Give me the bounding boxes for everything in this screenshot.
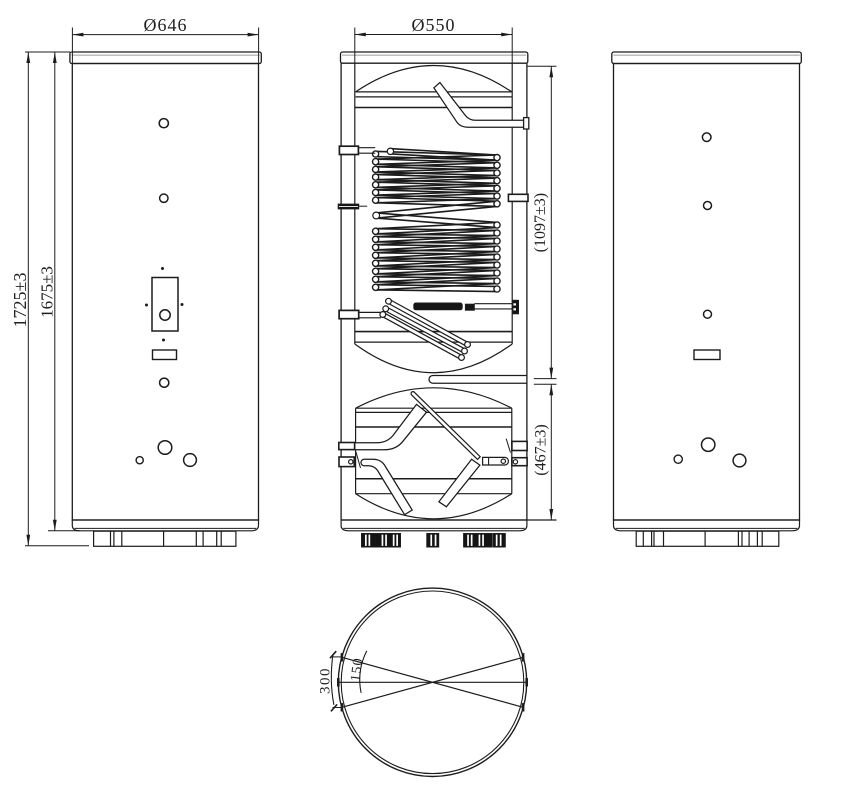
svg-text:300: 300 (318, 667, 334, 694)
svg-text:1725±3: 1725±3 (10, 273, 30, 328)
svg-text:(1097±3): (1097±3) (532, 193, 549, 252)
svg-text:150: 150 (349, 657, 367, 683)
svg-text:Ø550: Ø550 (412, 15, 456, 35)
svg-text:1675±3: 1675±3 (38, 266, 57, 318)
svg-text:Ø646: Ø646 (144, 15, 188, 35)
svg-text:(467±3): (467±3) (533, 424, 550, 475)
